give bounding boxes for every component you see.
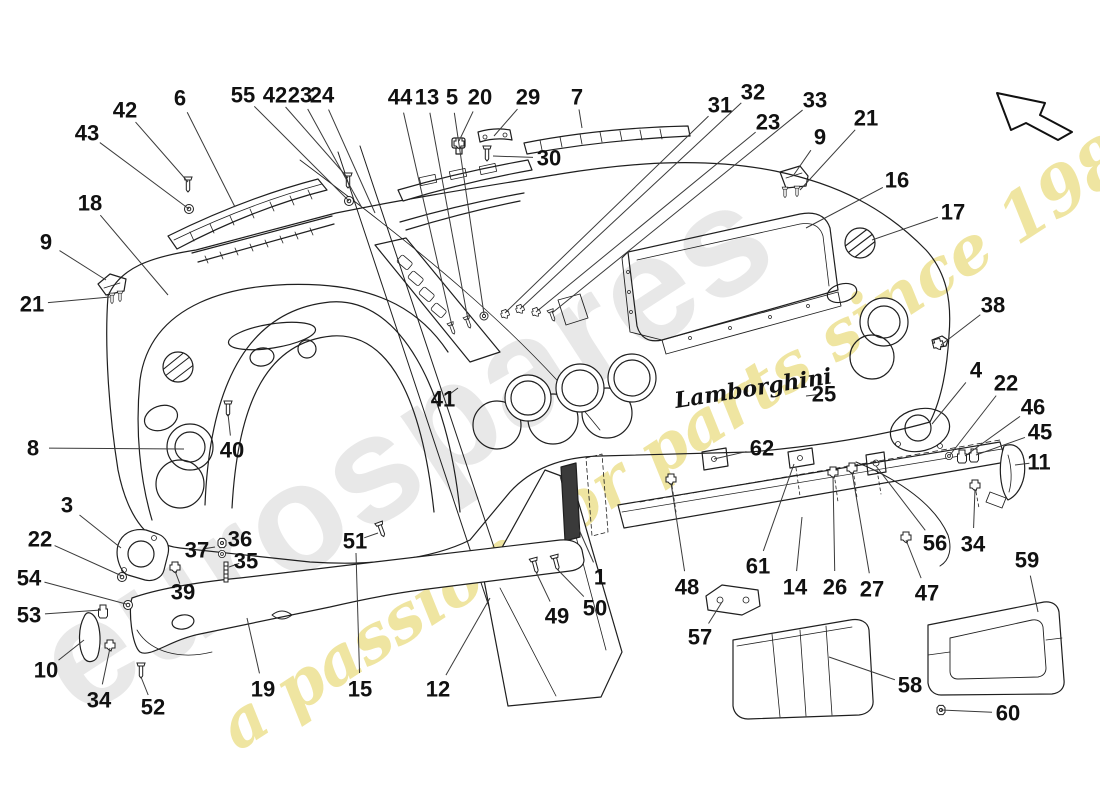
callout-label-23: 23 <box>288 83 312 108</box>
leader-line <box>60 251 106 280</box>
callout-label-44: 44 <box>388 85 413 110</box>
leader-line <box>763 464 794 551</box>
callout-label-8: 8 <box>27 436 39 461</box>
callout-label-20: 20 <box>468 85 492 110</box>
parts-diagram-page: eurospares a passion for parts since 198… <box>0 0 1100 800</box>
dashboard-parts-diagram: eurospares a passion for parts since 198… <box>0 0 1100 800</box>
callout-label-9: 9 <box>814 125 826 150</box>
callout-label-37: 37 <box>185 538 209 563</box>
callout-label-32: 32 <box>741 80 765 105</box>
leader-line <box>228 414 230 436</box>
callout-label-27: 27 <box>860 577 884 602</box>
speaker-plate-3 <box>117 530 168 581</box>
callout-label-52: 52 <box>141 695 165 720</box>
callout-label-56: 56 <box>923 531 947 556</box>
leader-line <box>459 111 473 141</box>
panel-58 <box>733 619 873 719</box>
bolt-icon <box>958 450 967 463</box>
bracket-9-right <box>780 166 808 188</box>
callout-label-46: 46 <box>1021 395 1045 420</box>
callout-label-43: 43 <box>75 121 99 146</box>
callout-label-25: 25 <box>812 382 836 407</box>
bracket-57 <box>706 585 760 615</box>
callout-label-7: 7 <box>571 85 583 110</box>
pillar-trim-1 <box>561 463 580 541</box>
callout-label-39: 39 <box>171 580 195 605</box>
leader-line <box>941 315 980 345</box>
callout-label-48: 48 <box>675 575 699 600</box>
callout-label-11: 11 <box>1027 450 1050 475</box>
callout-label-34: 34 <box>87 688 112 713</box>
stud-icon <box>224 562 228 582</box>
callout-label-51: 51 <box>343 529 367 554</box>
leader-line <box>48 297 110 303</box>
leader-line <box>974 489 975 528</box>
callout-label-41: 41 <box>431 387 455 412</box>
screw-icon <box>109 293 115 304</box>
leader-line <box>800 130 855 190</box>
direction-arrow <box>997 93 1072 140</box>
callout-label-17: 17 <box>941 200 965 225</box>
callout-label-50: 50 <box>583 596 607 621</box>
ring-icon <box>118 573 127 582</box>
callout-label-21: 21 <box>20 292 44 317</box>
defroster-slot-center <box>400 193 524 230</box>
callout-label-26: 26 <box>823 575 847 600</box>
leader-line <box>579 109 582 128</box>
callout-label-1: 1 <box>594 565 606 590</box>
callout-label-15: 15 <box>348 677 372 702</box>
callout-label-22: 22 <box>994 371 1018 396</box>
callout-label-59: 59 <box>1015 548 1039 573</box>
ring-icon <box>124 601 133 610</box>
callout-label-29: 29 <box>516 85 540 110</box>
leader-line <box>493 156 533 157</box>
wing-bracket-11 <box>986 445 1025 508</box>
callout-label-62: 62 <box>750 436 774 461</box>
callout-label-57: 57 <box>688 625 712 650</box>
callout-label-19: 19 <box>251 677 275 702</box>
leader-line <box>494 109 517 136</box>
bolt-icon <box>99 605 108 618</box>
ring-icon <box>218 550 225 557</box>
screw-icon <box>117 291 123 302</box>
callout-label-42: 42 <box>263 83 287 108</box>
callout-label-6: 6 <box>174 86 186 111</box>
callout-label-10: 10 <box>34 658 58 683</box>
callout-label-49: 49 <box>545 604 569 629</box>
callout-label-47: 47 <box>915 581 939 606</box>
callout-label-54: 54 <box>17 566 42 591</box>
callout-label-58: 58 <box>898 673 922 698</box>
leader-line <box>709 602 722 623</box>
callout-label-60: 60 <box>996 701 1020 726</box>
callout-label-21: 21 <box>854 106 878 131</box>
callout-label-55: 55 <box>231 83 255 108</box>
leader-line <box>136 122 188 182</box>
leader-line <box>941 710 992 712</box>
leader-line <box>793 150 811 176</box>
leader-line <box>806 187 883 228</box>
leader-line <box>906 540 921 578</box>
leader-line <box>671 483 685 571</box>
screw-icon <box>794 186 800 197</box>
callout-label-38: 38 <box>981 293 1005 318</box>
screw-icon <box>483 146 491 161</box>
clip-icon <box>932 338 945 351</box>
callout-label-3: 3 <box>61 493 73 518</box>
callout-label-16: 16 <box>885 168 909 193</box>
leader-line <box>286 107 348 178</box>
callout-label-14: 14 <box>783 575 808 600</box>
callout-label-12: 12 <box>426 677 450 702</box>
leader-line <box>49 448 184 449</box>
callout-label-35: 35 <box>234 549 258 574</box>
callout-label-9: 9 <box>40 230 52 255</box>
dashboard-line-art: Lamborghini <box>80 93 1073 719</box>
vent-ring-8 <box>167 424 213 470</box>
wedge-10 <box>80 613 101 662</box>
callout-label-13: 13 <box>415 85 439 110</box>
bolt-icon <box>970 449 979 462</box>
leader-line <box>100 143 189 209</box>
screw-icon <box>782 187 788 198</box>
callout-label-61: 61 <box>746 554 770 579</box>
callout-label-42: 42 <box>113 98 137 123</box>
screw-icon <box>224 401 232 416</box>
leader-line <box>100 215 168 295</box>
callout-label-34: 34 <box>961 532 986 557</box>
leader-line <box>797 517 802 571</box>
leader-line <box>876 466 925 530</box>
callout-label-45: 45 <box>1028 420 1052 445</box>
leader-line <box>454 113 484 314</box>
callout-label-40: 40 <box>220 438 244 463</box>
callout-label-5: 5 <box>446 85 458 110</box>
callout-label-33: 33 <box>803 88 827 113</box>
callout-label-30: 30 <box>537 146 561 171</box>
bracket-61 <box>788 448 814 468</box>
callout-label-4: 4 <box>970 358 983 383</box>
leader-line <box>833 476 835 571</box>
callout-label-18: 18 <box>78 191 102 216</box>
leader-line <box>187 112 235 207</box>
callout-label-53: 53 <box>17 603 41 628</box>
callout-label-24: 24 <box>310 83 335 108</box>
panel-59 <box>928 602 1064 695</box>
callout-label-31: 31 <box>708 93 732 118</box>
callout-label-22: 22 <box>28 527 52 552</box>
